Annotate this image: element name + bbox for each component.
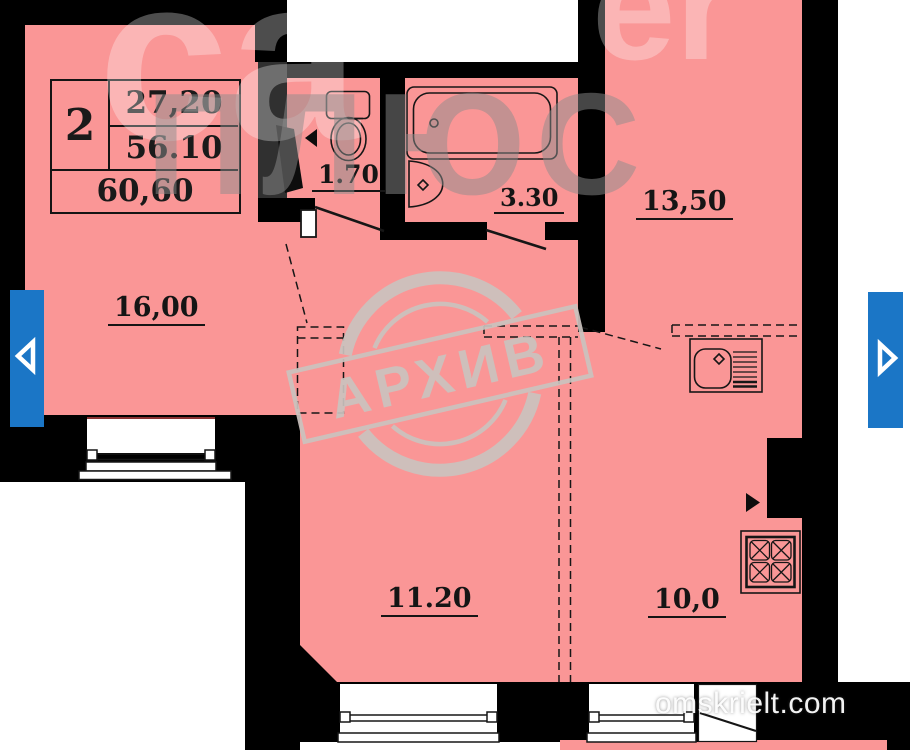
room-16-label: 16,00 [108, 293, 205, 326]
floorplan-screenshot: АРХИВ 2 27,20 56.10 60,60 16,00 1.70 3.3… [0, 0, 910, 750]
right-arrow-icon [868, 292, 903, 428]
prev-button[interactable] [10, 290, 44, 427]
wall [245, 477, 300, 750]
kitchen-label: 10,0 [648, 585, 726, 618]
wall [802, 518, 838, 684]
watermark-agency: ПЛЮС [146, 72, 652, 217]
window-bottom-left [340, 684, 497, 742]
wall [802, 0, 838, 438]
left-arrow-icon [10, 290, 44, 427]
window-room16 [87, 419, 215, 453]
wall [767, 438, 838, 518]
next-button[interactable] [868, 292, 903, 428]
room-11-label: 11.20 [381, 584, 478, 617]
site-watermark: omskrielt.com [655, 687, 847, 721]
wall [887, 682, 910, 750]
hall-living-area [280, 222, 810, 684]
